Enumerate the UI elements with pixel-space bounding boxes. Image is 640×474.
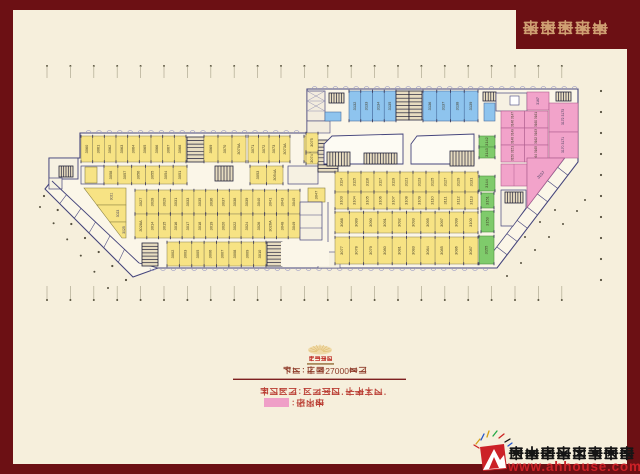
svg-text:3108: 3108 (404, 196, 409, 205)
svg-text:3106: 3106 (378, 196, 383, 205)
svg-text:3146 3147: 3146 3147 (511, 112, 515, 127)
svg-text:3153: 3153 (485, 217, 490, 226)
svg-text:3067: 3067 (166, 145, 171, 154)
svg-text:3068: 3068 (177, 145, 182, 154)
svg-text:3111: 3111 (443, 196, 448, 204)
svg-text:3113: 3113 (469, 196, 474, 204)
svg-text:3167: 3167 (536, 97, 540, 105)
svg-text:27000: 27000 (325, 366, 349, 376)
svg-text:3031: 3031 (173, 198, 178, 207)
svg-text:3148 3149: 3148 3149 (511, 129, 515, 144)
svg-text:3115: 3115 (352, 178, 357, 186)
svg-text:3028A: 3028A (138, 220, 143, 232)
svg-text:3160 3161: 3160 3161 (534, 112, 538, 127)
svg-text:3127: 3127 (443, 178, 448, 187)
svg-text:3085: 3085 (439, 246, 444, 255)
svg-text:3075: 3075 (309, 138, 314, 147)
svg-text:3091: 3091 (382, 218, 387, 227)
svg-text:3029: 3029 (162, 198, 167, 207)
svg-text:3129: 3129 (456, 178, 461, 187)
svg-text:3003: 3003 (183, 250, 188, 259)
svg-text:3015: 3015 (162, 222, 167, 231)
svg-text:3027: 3027 (138, 198, 143, 207)
svg-text:3088: 3088 (339, 218, 344, 227)
svg-text:3070A: 3070A (236, 143, 241, 155)
svg-text:3162 3163: 3162 3163 (534, 129, 538, 144)
svg-text:3036: 3036 (209, 198, 214, 207)
svg-text:3125: 3125 (430, 178, 435, 187)
svg-text:3155: 3155 (484, 246, 489, 255)
svg-text:3117: 3117 (378, 178, 383, 186)
svg-text:3072: 3072 (261, 145, 266, 154)
svg-text:3099: 3099 (454, 218, 459, 227)
svg-text:3051: 3051 (177, 171, 182, 180)
svg-text:3006: 3006 (207, 250, 212, 259)
svg-text:3026: 3026 (256, 222, 261, 231)
svg-text:3133: 3133 (364, 102, 369, 111)
svg-text:3071: 3071 (250, 145, 255, 154)
svg-text:3151: 3151 (485, 196, 490, 205)
svg-text:3007: 3007 (220, 250, 225, 259)
svg-text:3069: 3069 (208, 145, 213, 154)
svg-text:3110: 3110 (430, 195, 435, 204)
svg-text:3061: 3061 (96, 145, 101, 154)
svg-text:3023: 3023 (116, 210, 120, 218)
svg-text:3078: 3078 (353, 246, 358, 255)
svg-text:3045: 3045 (291, 198, 296, 207)
svg-text:3058: 3058 (108, 171, 113, 180)
svg-text:3065: 3065 (142, 145, 147, 154)
svg-text:3021: 3021 (109, 193, 113, 201)
svg-text:3135: 3135 (387, 102, 392, 111)
svg-text:3055: 3055 (149, 171, 154, 180)
svg-text:3119: 3119 (391, 178, 396, 186)
svg-text:3139: 3139 (468, 102, 473, 111)
svg-text:3143: 3143 (484, 148, 489, 157)
svg-text:3079: 3079 (368, 246, 373, 255)
svg-text:3043: 3043 (279, 198, 284, 207)
svg-text:3083: 3083 (411, 246, 416, 255)
svg-text:3104: 3104 (352, 195, 357, 204)
svg-text:3039: 3039 (244, 198, 249, 207)
svg-text:3047: 3047 (314, 191, 319, 200)
svg-text:3089: 3089 (353, 218, 358, 227)
svg-text:3142: 3142 (484, 137, 489, 146)
svg-text:3066: 3066 (154, 145, 159, 154)
svg-text:3026A: 3026A (268, 220, 273, 232)
svg-text:3092: 3092 (396, 218, 401, 227)
svg-text:3020: 3020 (220, 221, 225, 230)
svg-text:3137: 3137 (441, 102, 446, 111)
svg-text:3064: 3064 (131, 144, 136, 153)
svg-text:3144: 3144 (484, 178, 489, 187)
svg-text:3041: 3041 (268, 198, 273, 207)
svg-text:3018: 3018 (197, 222, 202, 231)
svg-text:3019: 3019 (209, 222, 214, 231)
svg-text:3070: 3070 (222, 144, 227, 153)
svg-text:3105: 3105 (365, 196, 370, 205)
svg-text:3170 3171: 3170 3171 (561, 137, 565, 153)
svg-text:3037: 3037 (220, 198, 225, 207)
svg-text:3084: 3084 (425, 245, 430, 254)
svg-text:3038: 3038 (232, 198, 237, 207)
svg-text:3172 3173: 3172 3173 (561, 109, 565, 125)
svg-text:3123: 3123 (417, 178, 422, 187)
svg-text:3095: 3095 (425, 218, 430, 227)
svg-text:3073A: 3073A (282, 143, 287, 155)
svg-text:3112: 3112 (456, 196, 461, 204)
svg-text:3134: 3134 (375, 101, 380, 110)
svg-text:3049: 3049 (291, 222, 296, 231)
svg-text:3073: 3073 (271, 145, 276, 154)
svg-text:3056: 3056 (136, 171, 141, 180)
svg-text:3054: 3054 (163, 170, 168, 179)
svg-text:3087: 3087 (468, 246, 473, 255)
svg-text:3035: 3035 (197, 198, 202, 207)
svg-text:3002: 3002 (170, 250, 175, 259)
svg-text:3053: 3053 (255, 171, 260, 180)
svg-text:3010: 3010 (257, 249, 262, 258)
svg-text:3054A: 3054A (272, 169, 277, 181)
svg-text:3100: 3100 (468, 217, 473, 226)
svg-text:3022: 3022 (232, 222, 237, 231)
svg-text:3028: 3028 (150, 198, 155, 207)
svg-text:3080: 3080 (382, 245, 387, 254)
svg-text:3063: 3063 (119, 145, 124, 154)
svg-text:3005: 3005 (195, 250, 200, 259)
svg-text:3025: 3025 (122, 226, 126, 234)
svg-text:3008: 3008 (232, 250, 237, 259)
svg-text:3150 3151: 3150 3151 (511, 146, 515, 161)
svg-text:3016: 3016 (173, 222, 178, 231)
svg-text:3114: 3114 (339, 177, 344, 186)
svg-text:3086: 3086 (454, 246, 459, 255)
svg-text:3103: 3103 (339, 196, 344, 205)
svg-text:3009: 3009 (244, 250, 249, 259)
svg-text:3040: 3040 (256, 197, 261, 206)
svg-text:3090: 3090 (368, 217, 373, 226)
svg-text:3107: 3107 (391, 196, 396, 205)
svg-text:3116: 3116 (365, 178, 370, 186)
svg-text:3121: 3121 (404, 178, 409, 187)
svg-text:3062: 3062 (107, 145, 112, 154)
svg-text:3057: 3057 (122, 171, 127, 180)
svg-text:3017: 3017 (185, 222, 190, 231)
svg-text:3109: 3109 (417, 196, 422, 205)
svg-text:3074: 3074 (309, 153, 314, 162)
svg-text:3138: 3138 (454, 102, 459, 111)
svg-text:3136: 3136 (427, 102, 432, 111)
svg-text:www.ahhouse.com: www.ahhouse.com (507, 459, 640, 474)
svg-text:3033: 3033 (185, 198, 190, 207)
svg-text:3048: 3048 (279, 222, 284, 231)
svg-text:3081: 3081 (396, 246, 401, 255)
svg-text:3131: 3131 (469, 178, 474, 187)
svg-text:3097: 3097 (439, 218, 444, 227)
svg-text:3077: 3077 (339, 246, 344, 255)
svg-text:3093: 3093 (411, 218, 416, 227)
svg-text:3132: 3132 (352, 102, 357, 111)
svg-text:3014: 3014 (150, 221, 155, 230)
svg-text:3060: 3060 (84, 144, 89, 153)
svg-text:3024: 3024 (244, 221, 249, 230)
